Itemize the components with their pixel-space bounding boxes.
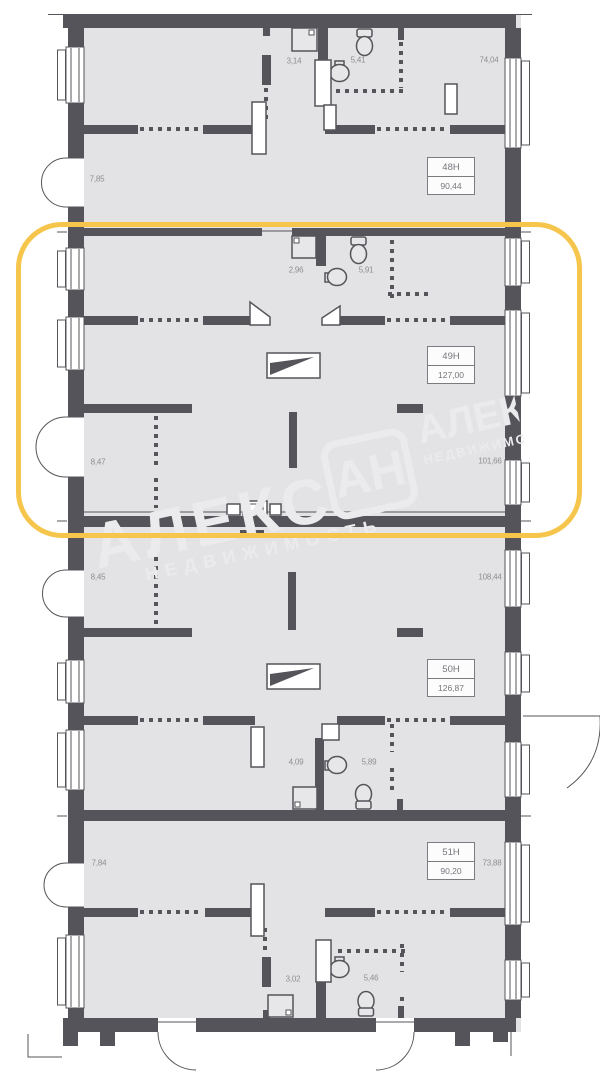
sink-icon <box>328 757 347 774</box>
unit-area: 90,20 <box>428 861 474 879</box>
dim-label: 5,46 <box>364 974 379 983</box>
toilet-icon <box>357 37 373 56</box>
unit-number: 48Н <box>428 158 474 176</box>
dim-label: 3,14 <box>287 57 302 66</box>
door-leaf <box>251 884 264 936</box>
dim-label: 3,02 <box>286 975 301 984</box>
unit-49n-highlight-outline <box>16 222 582 538</box>
dim-label: 108,44 <box>478 573 501 582</box>
unit-48n-info-box: 48Н 90,44 <box>427 157 475 195</box>
unit-50n-info-box: 50Н 126,87 <box>427 659 475 697</box>
dim-label: 74,04 <box>479 56 498 65</box>
dim-label: 4,09 <box>289 758 304 767</box>
dim-label: 5,89 <box>362 758 377 767</box>
door-leaf <box>324 105 336 130</box>
dim-label: 5,41 <box>351 56 366 65</box>
unit-area: 126,87 <box>428 678 474 696</box>
unit-number: 50Н <box>428 660 474 678</box>
door-leaf <box>322 724 339 740</box>
door-leaf <box>251 727 264 767</box>
sink-icon <box>330 961 349 978</box>
toilet-icon <box>359 1008 374 1016</box>
door-leaf <box>445 84 457 114</box>
dim-label: 7,84 <box>92 859 107 868</box>
door-leaf <box>315 60 331 106</box>
unit-number: 51Н <box>428 843 474 861</box>
door-leaf <box>316 940 331 982</box>
unit-51n-info-box: 51Н 90,20 <box>427 842 475 880</box>
dim-label: 7,85 <box>90 175 105 184</box>
floorplan-image: АЛЕКС НЕДВИЖИМОСТЬ АН АЛЕКС НЕДВИЖИМОСТЬ… <box>0 0 600 1074</box>
sink-icon <box>330 65 349 82</box>
door-leaf <box>252 102 266 154</box>
door-swing-arc <box>523 716 600 788</box>
unit-area: 90,44 <box>428 176 474 194</box>
toilet-icon <box>356 801 371 809</box>
dim-label: 73,88 <box>482 859 501 868</box>
dim-label: 8,45 <box>91 573 106 582</box>
